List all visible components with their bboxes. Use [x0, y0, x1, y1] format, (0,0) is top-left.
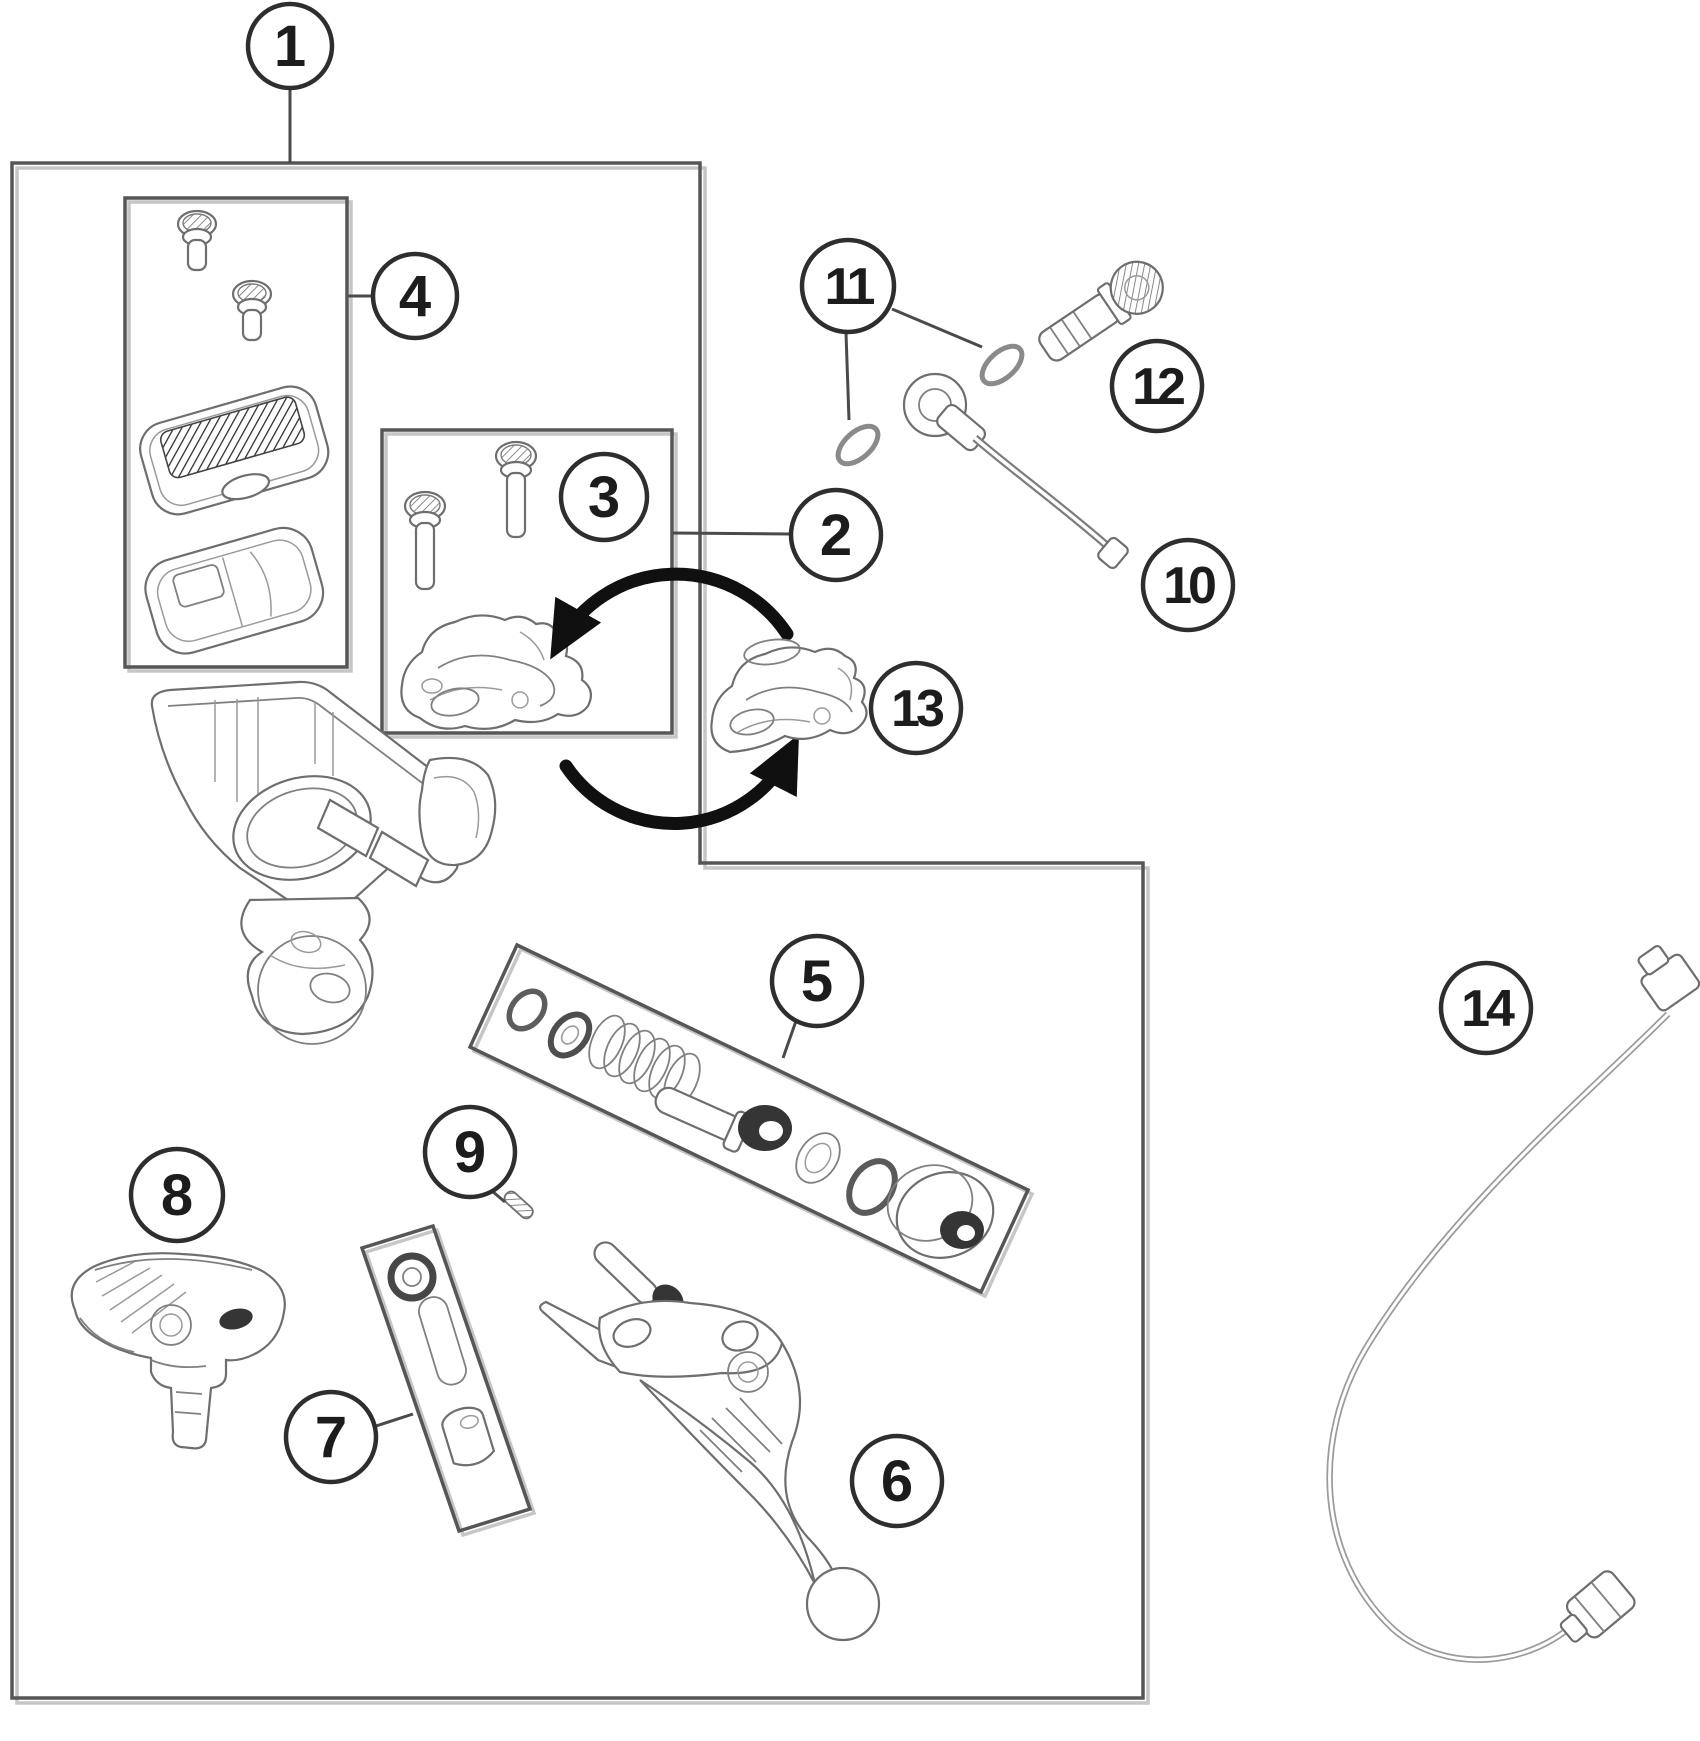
callout-2: 2: [791, 490, 881, 580]
o-ring-rear: [975, 339, 1028, 390]
callout-3: 3: [561, 454, 647, 540]
callout-9-label: 9: [454, 1120, 486, 1185]
clamp-bolt-left: [405, 492, 445, 589]
leader-line-11a: [846, 333, 849, 420]
callout-4: 4: [373, 254, 457, 338]
callout-6: 6: [852, 1436, 942, 1526]
adjuster-box-7: [362, 1226, 534, 1535]
cylinder-cover: [72, 1253, 285, 1448]
reservoir-screw-front: [178, 211, 216, 270]
piston-kit-oring-small: [502, 984, 552, 1035]
callout-2-label: 2: [820, 503, 852, 568]
diagram-canvas: 1 2 3 4 5 6 7 8 9 10 11 12: [0, 0, 1700, 1741]
reservoir-diaphragm: [138, 521, 330, 661]
parts-diagram: 1 2 3 4 5 6 7 8 9 10 11 12: [0, 0, 1700, 1741]
callout-5: 5: [772, 936, 862, 1026]
callout-13: 13: [871, 663, 961, 753]
callout-8-label: 8: [161, 1163, 193, 1228]
adjuster-spacer: [439, 1403, 496, 1470]
callout-10: 10: [1143, 540, 1233, 630]
callout-11-label: 11: [825, 258, 875, 316]
switch-cable: [1330, 938, 1700, 1660]
pushrod-pin: [502, 1189, 535, 1221]
callout-12-label: 12: [1132, 358, 1184, 416]
reservoir-screw-rear: [233, 281, 271, 340]
callout-3-label: 3: [588, 465, 620, 530]
callout-7: 7: [286, 1392, 376, 1482]
leader-line-5: [783, 1021, 796, 1058]
callout-5-label: 5: [801, 949, 833, 1014]
brake-lever: [540, 1238, 879, 1640]
clamp-bolt-right: [496, 442, 536, 537]
callout-12: 12: [1112, 341, 1202, 431]
diagram-border: [12, 163, 1148, 1703]
callout-4-label: 4: [399, 264, 431, 329]
callout-14: 14: [1441, 963, 1531, 1053]
callout-1: 1: [248, 4, 332, 88]
leader-line-11b: [892, 309, 982, 347]
callout-13-label: 13: [891, 680, 944, 738]
handlebar-clamp-alternate: [711, 636, 866, 752]
callout-10-label: 10: [1163, 557, 1215, 615]
adjuster-nut: [391, 1256, 433, 1298]
cable-connector-top: [1629, 938, 1700, 1013]
leader-line-2: [673, 533, 791, 534]
callout-14-label: 14: [1461, 980, 1515, 1038]
cable-connector-bottom: [1552, 1568, 1638, 1651]
o-ring-front: [831, 419, 884, 470]
leader-line-7: [376, 1414, 413, 1426]
brake-hose: [904, 374, 1130, 570]
reservoir-cap: [134, 380, 335, 522]
callout-1-label: 1: [274, 14, 306, 79]
piston-kit-washer: [787, 1125, 849, 1191]
callout-9: 9: [425, 1107, 515, 1197]
callout-11: 11: [802, 240, 894, 332]
callout-6-label: 6: [881, 1449, 913, 1514]
rotation-arrow-bottom-icon: [566, 752, 790, 824]
callout-8: 8: [131, 1149, 223, 1241]
callout-7-label: 7: [315, 1405, 347, 1470]
